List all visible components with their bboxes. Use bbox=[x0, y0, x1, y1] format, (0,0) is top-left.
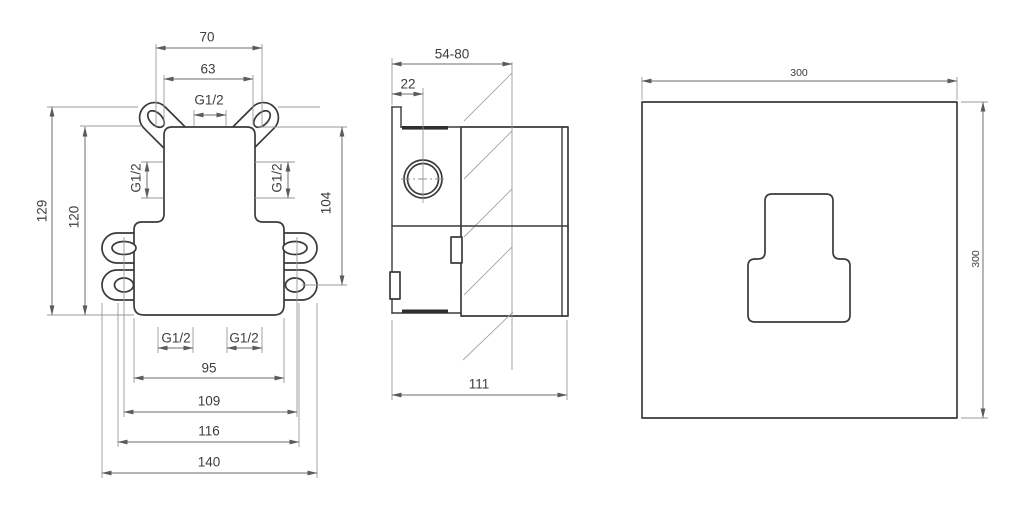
dim-label-120: 120 bbox=[67, 206, 82, 229]
view-plate: 300 300 bbox=[642, 67, 988, 418]
dim-label-95: 95 bbox=[201, 361, 216, 376]
view-front: 70 63 G1/2 G1/2 G1/2 129 120 104 G1/2 G1… bbox=[35, 30, 348, 479]
tab-hole-lower-right bbox=[286, 278, 305, 292]
dim-label-111: 111 bbox=[469, 377, 490, 392]
front-housing-profile bbox=[392, 107, 461, 313]
dim-label-140: 140 bbox=[198, 455, 221, 470]
tab-hole-upper-right bbox=[283, 242, 307, 255]
dim-label-g12-top: G1/2 bbox=[194, 93, 223, 108]
dim-label-109: 109 bbox=[198, 394, 221, 409]
dim-label-63: 63 bbox=[200, 62, 215, 77]
dim-label-g12-side-right: G1/2 bbox=[270, 163, 285, 192]
valve-installation-drawing: 70 63 G1/2 G1/2 G1/2 129 120 104 G1/2 G1… bbox=[0, 0, 1024, 515]
side-tab-edge bbox=[390, 272, 400, 299]
dim-label-70: 70 bbox=[199, 30, 214, 45]
dim-label-54-80: 54-80 bbox=[435, 47, 470, 62]
rear-housing-box bbox=[461, 127, 568, 316]
dim-label-300-width: 300 bbox=[790, 67, 808, 79]
clamp-detail bbox=[451, 237, 462, 263]
dim-label-g12-bottom-right: G1/2 bbox=[229, 331, 258, 346]
dim-label-300-height: 300 bbox=[970, 250, 982, 268]
dim-label-g12-side-left: G1/2 bbox=[129, 163, 144, 192]
dim-label-129: 129 bbox=[35, 200, 50, 223]
valve-body-outline bbox=[134, 127, 284, 315]
dim-label-g12-bottom-left: G1/2 bbox=[161, 331, 190, 346]
bottom-mounting-bar bbox=[402, 310, 448, 314]
dim-label-22: 22 bbox=[400, 77, 415, 92]
view-side: 54-80 22 111 bbox=[390, 47, 568, 401]
top-mounting-bar bbox=[402, 126, 448, 130]
dim-label-104: 104 bbox=[319, 191, 334, 214]
dim-label-116: 116 bbox=[198, 424, 220, 439]
technical-drawing-canvas: 70 63 G1/2 G1/2 G1/2 129 120 104 G1/2 G1… bbox=[0, 0, 1024, 515]
